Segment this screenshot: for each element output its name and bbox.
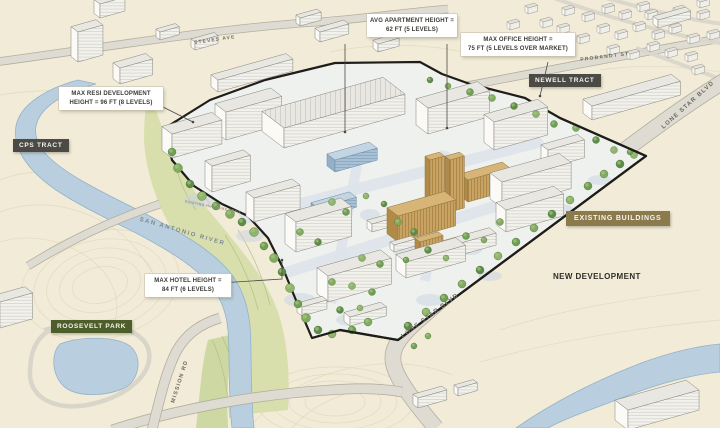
apartment-height-callout: AVG APARTMENT HEIGHT = 62 FT (5 LEVELS) [367,14,457,37]
resi-height-callout: MAX RESI DEVELOPMENT HEIGHT = 96 FT (8 L… [59,87,163,110]
hotel-height-line1: MAX HOTEL HEIGHT = [148,277,228,286]
hotel-height-callout: MAX HOTEL HEIGHT = 84 FT (6 LEVELS) [145,274,231,297]
new-building [71,20,103,62]
cps-tract-badge: CPS TRACT [13,139,69,152]
apartment-height-line2: 62 FT (5 LEVELS) [370,26,454,35]
office-height-line2: 75 FT (5 LEVELS OVER MARKET) [464,45,572,54]
masterplan-rendering: STEVES AVE PROBANDT ST LONE STAR BLVD LO… [0,0,720,428]
resi-height-line1: MAX RESI DEVELOPMENT [62,90,160,99]
resi-height-line2: HEIGHT = 96 FT (8 LEVELS) [62,99,160,108]
hotel-height-line2: 84 FT (6 LEVELS) [148,286,228,295]
office-height-line1: MAX OFFICE HEIGHT = [464,36,572,45]
new-development-label: NEW DEVELOPMENT [553,272,641,281]
roosevelt-park-badge: ROOSEVELT PARK [51,320,132,333]
office-height-callout: MAX OFFICE HEIGHT = 75 FT (5 LEVELS OVER… [461,33,575,56]
newell-tract-badge: NEWELL TRACT [529,74,601,87]
existing-buildings-badge: EXISTING BUILDINGS [566,211,670,226]
apartment-height-line1: AVG APARTMENT HEIGHT = [370,17,454,26]
